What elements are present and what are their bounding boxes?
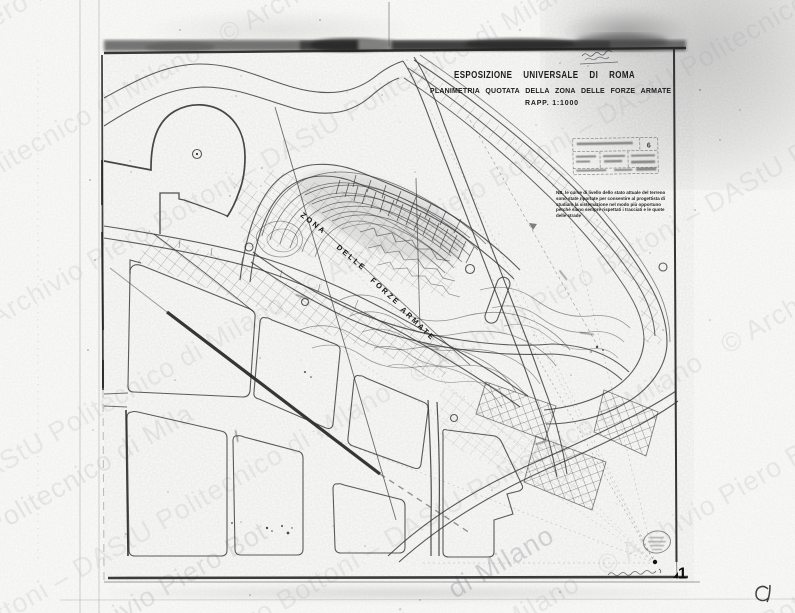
svg-text:6: 6 [647, 142, 651, 149]
svg-text:1: 1 [678, 566, 687, 583]
